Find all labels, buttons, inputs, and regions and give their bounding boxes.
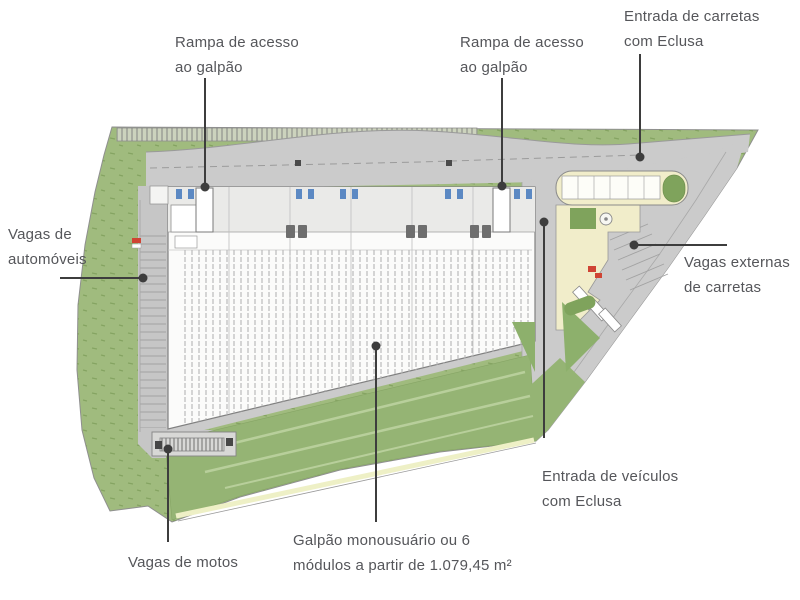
site-plan-drawing [0, 0, 800, 600]
label-vagas-automoveis: Vagas de automóveis [8, 222, 87, 272]
label-vagas-externas: Vagas externas de carretas [684, 250, 790, 300]
eclusa-green-cap [663, 175, 685, 202]
barrier-red [588, 266, 596, 272]
ramp-1 [196, 188, 213, 232]
label-galpao-modulos: Galpão monousuário ou 6 módulos a partir… [293, 528, 512, 578]
ramp-2 [493, 188, 510, 232]
label-vagas-motos: Vagas de motos [128, 550, 238, 575]
gate-marker [132, 238, 141, 243]
dock-apron [168, 187, 535, 232]
label-entrada-carretas: Entrada de carretas com Eclusa [624, 4, 760, 54]
label-rampa-acesso-2: Rampa de acesso ao galpão [460, 30, 584, 80]
drain-mark [446, 160, 452, 166]
site-plan: Rampa de acesso ao galpão Rampa de acess… [0, 0, 800, 600]
garden-square [570, 208, 596, 229]
label-entrada-veiculos: Entrada de veículos com Eclusa [542, 464, 678, 514]
moto-parking [152, 432, 236, 456]
drain-mark [295, 160, 301, 166]
label-rampa-acesso-1: Rampa de acesso ao galpão [175, 30, 299, 80]
